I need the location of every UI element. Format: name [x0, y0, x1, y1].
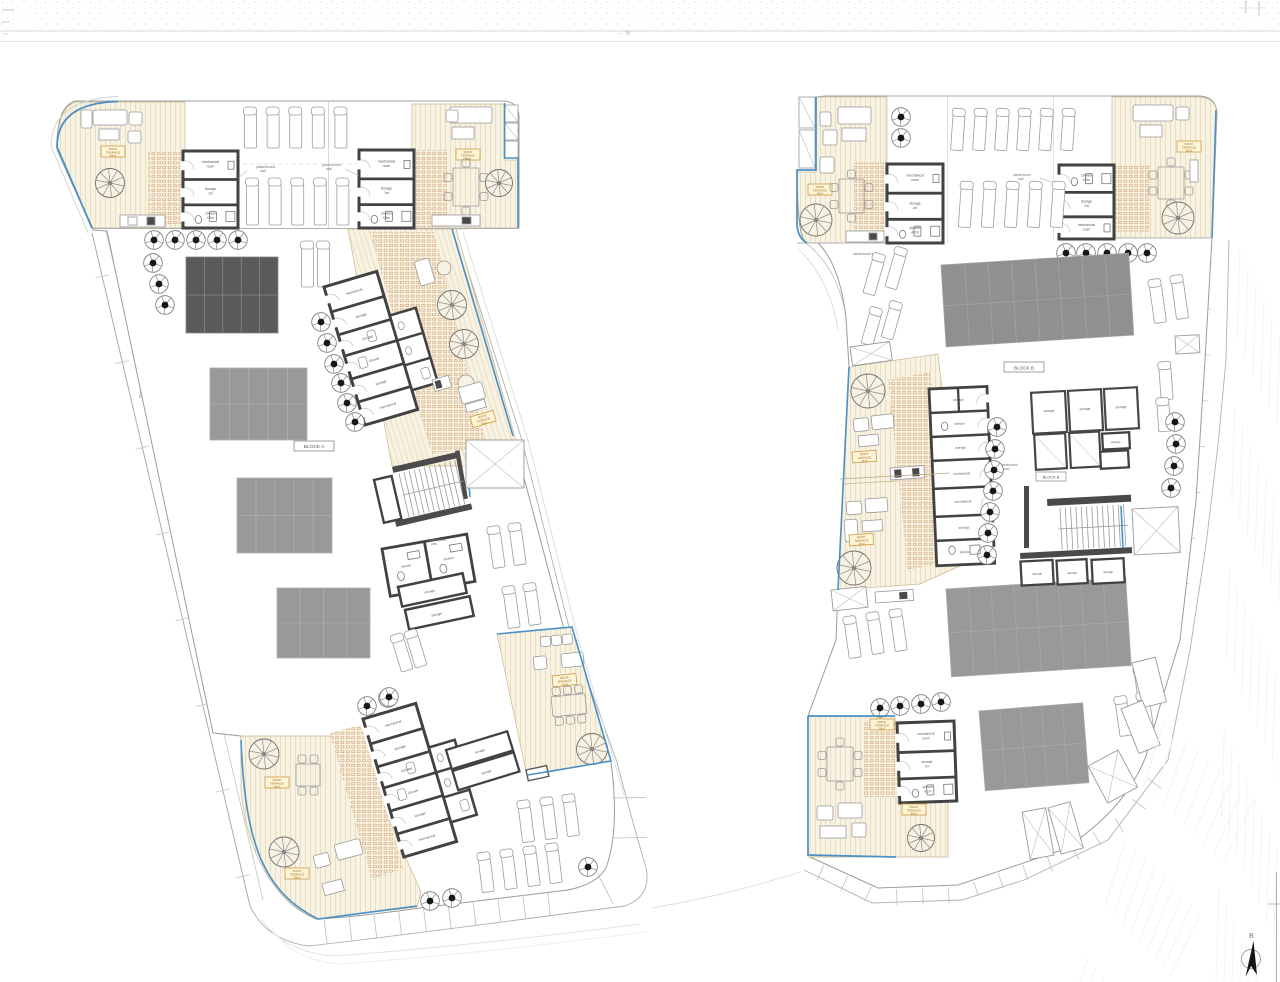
svg-text:38m2: 38m2	[817, 192, 824, 196]
svg-text:storage: storage	[909, 201, 920, 205]
svg-text:shower: shower	[954, 421, 966, 425]
svg-text:wall: wall	[326, 167, 332, 171]
svg-text:storage: storage	[955, 445, 966, 449]
svg-text:mechanical: mechanical	[955, 499, 972, 504]
svg-text:38m2: 38m2	[294, 876, 301, 880]
svg-text:storage: storage	[1103, 570, 1114, 575]
svg-text:storage: storage	[1081, 200, 1092, 204]
svg-text:storage: storage	[1067, 571, 1078, 576]
svg-text:1m: 1m	[925, 764, 930, 768]
svg-text:38m2: 38m2	[911, 812, 918, 816]
svg-text:shower: shower	[910, 226, 922, 230]
svg-text:room: room	[1083, 227, 1091, 231]
svg-text:38m2: 38m2	[110, 154, 117, 158]
svg-text:storage: storage	[381, 187, 392, 191]
svg-text:4.2m: 4.2m	[911, 231, 919, 235]
svg-text:wall: wall	[260, 169, 266, 173]
svg-text:room: room	[922, 736, 930, 740]
svg-text:storage: storage	[205, 187, 216, 191]
svg-text:38m2: 38m2	[1186, 149, 1193, 153]
svg-text:mechanical: mechanical	[378, 159, 395, 163]
svg-text:1m: 1m	[1084, 204, 1089, 208]
svg-text:38m2: 38m2	[858, 541, 865, 545]
svg-text:38m2: 38m2	[274, 785, 281, 789]
svg-text:BLOCK B: BLOCK B	[1014, 366, 1034, 371]
svg-text:storage: storage	[1079, 407, 1090, 412]
svg-text:room: room	[911, 178, 919, 182]
svg-text:wall: wall	[431, 542, 437, 546]
svg-text:1m: 1m	[913, 206, 918, 210]
svg-text:storage: storage	[1043, 409, 1054, 414]
svg-text:shower: shower	[1081, 174, 1093, 178]
svg-text:storage: storage	[1110, 440, 1121, 445]
svg-text:shower: shower	[205, 212, 217, 216]
svg-text:mechanical: mechanical	[202, 160, 219, 164]
svg-text:storage: storage	[958, 525, 969, 529]
svg-text:1m: 1m	[384, 191, 389, 195]
svg-text:mechanical: mechanical	[906, 174, 923, 178]
svg-text:4.2m: 4.2m	[924, 789, 932, 793]
svg-text:wall: wall	[1004, 467, 1010, 471]
svg-text:38m2: 38m2	[879, 727, 886, 731]
svg-text:room: room	[383, 164, 391, 168]
svg-text:BLOCK B: BLOCK B	[1043, 476, 1060, 480]
svg-text:4.2m: 4.2m	[383, 216, 391, 220]
svg-text:BLOCK A: BLOCK A	[304, 444, 325, 450]
svg-text:1m: 1m	[208, 192, 213, 196]
svg-text:B: B	[1249, 933, 1254, 940]
svg-text:mechanical: mechanical	[953, 471, 970, 476]
svg-text:wall: wall	[1018, 177, 1024, 181]
svg-text:mechanical: mechanical	[1078, 223, 1095, 227]
svg-text:storage: storage	[1032, 571, 1043, 576]
svg-text:shower: shower	[381, 211, 393, 215]
svg-text:room: room	[207, 165, 215, 169]
svg-text:38m2: 38m2	[861, 458, 868, 462]
svg-text:4.2m: 4.2m	[207, 216, 215, 220]
svg-text:4.2m: 4.2m	[1083, 178, 1091, 182]
svg-text:storage: storage	[1115, 405, 1126, 410]
